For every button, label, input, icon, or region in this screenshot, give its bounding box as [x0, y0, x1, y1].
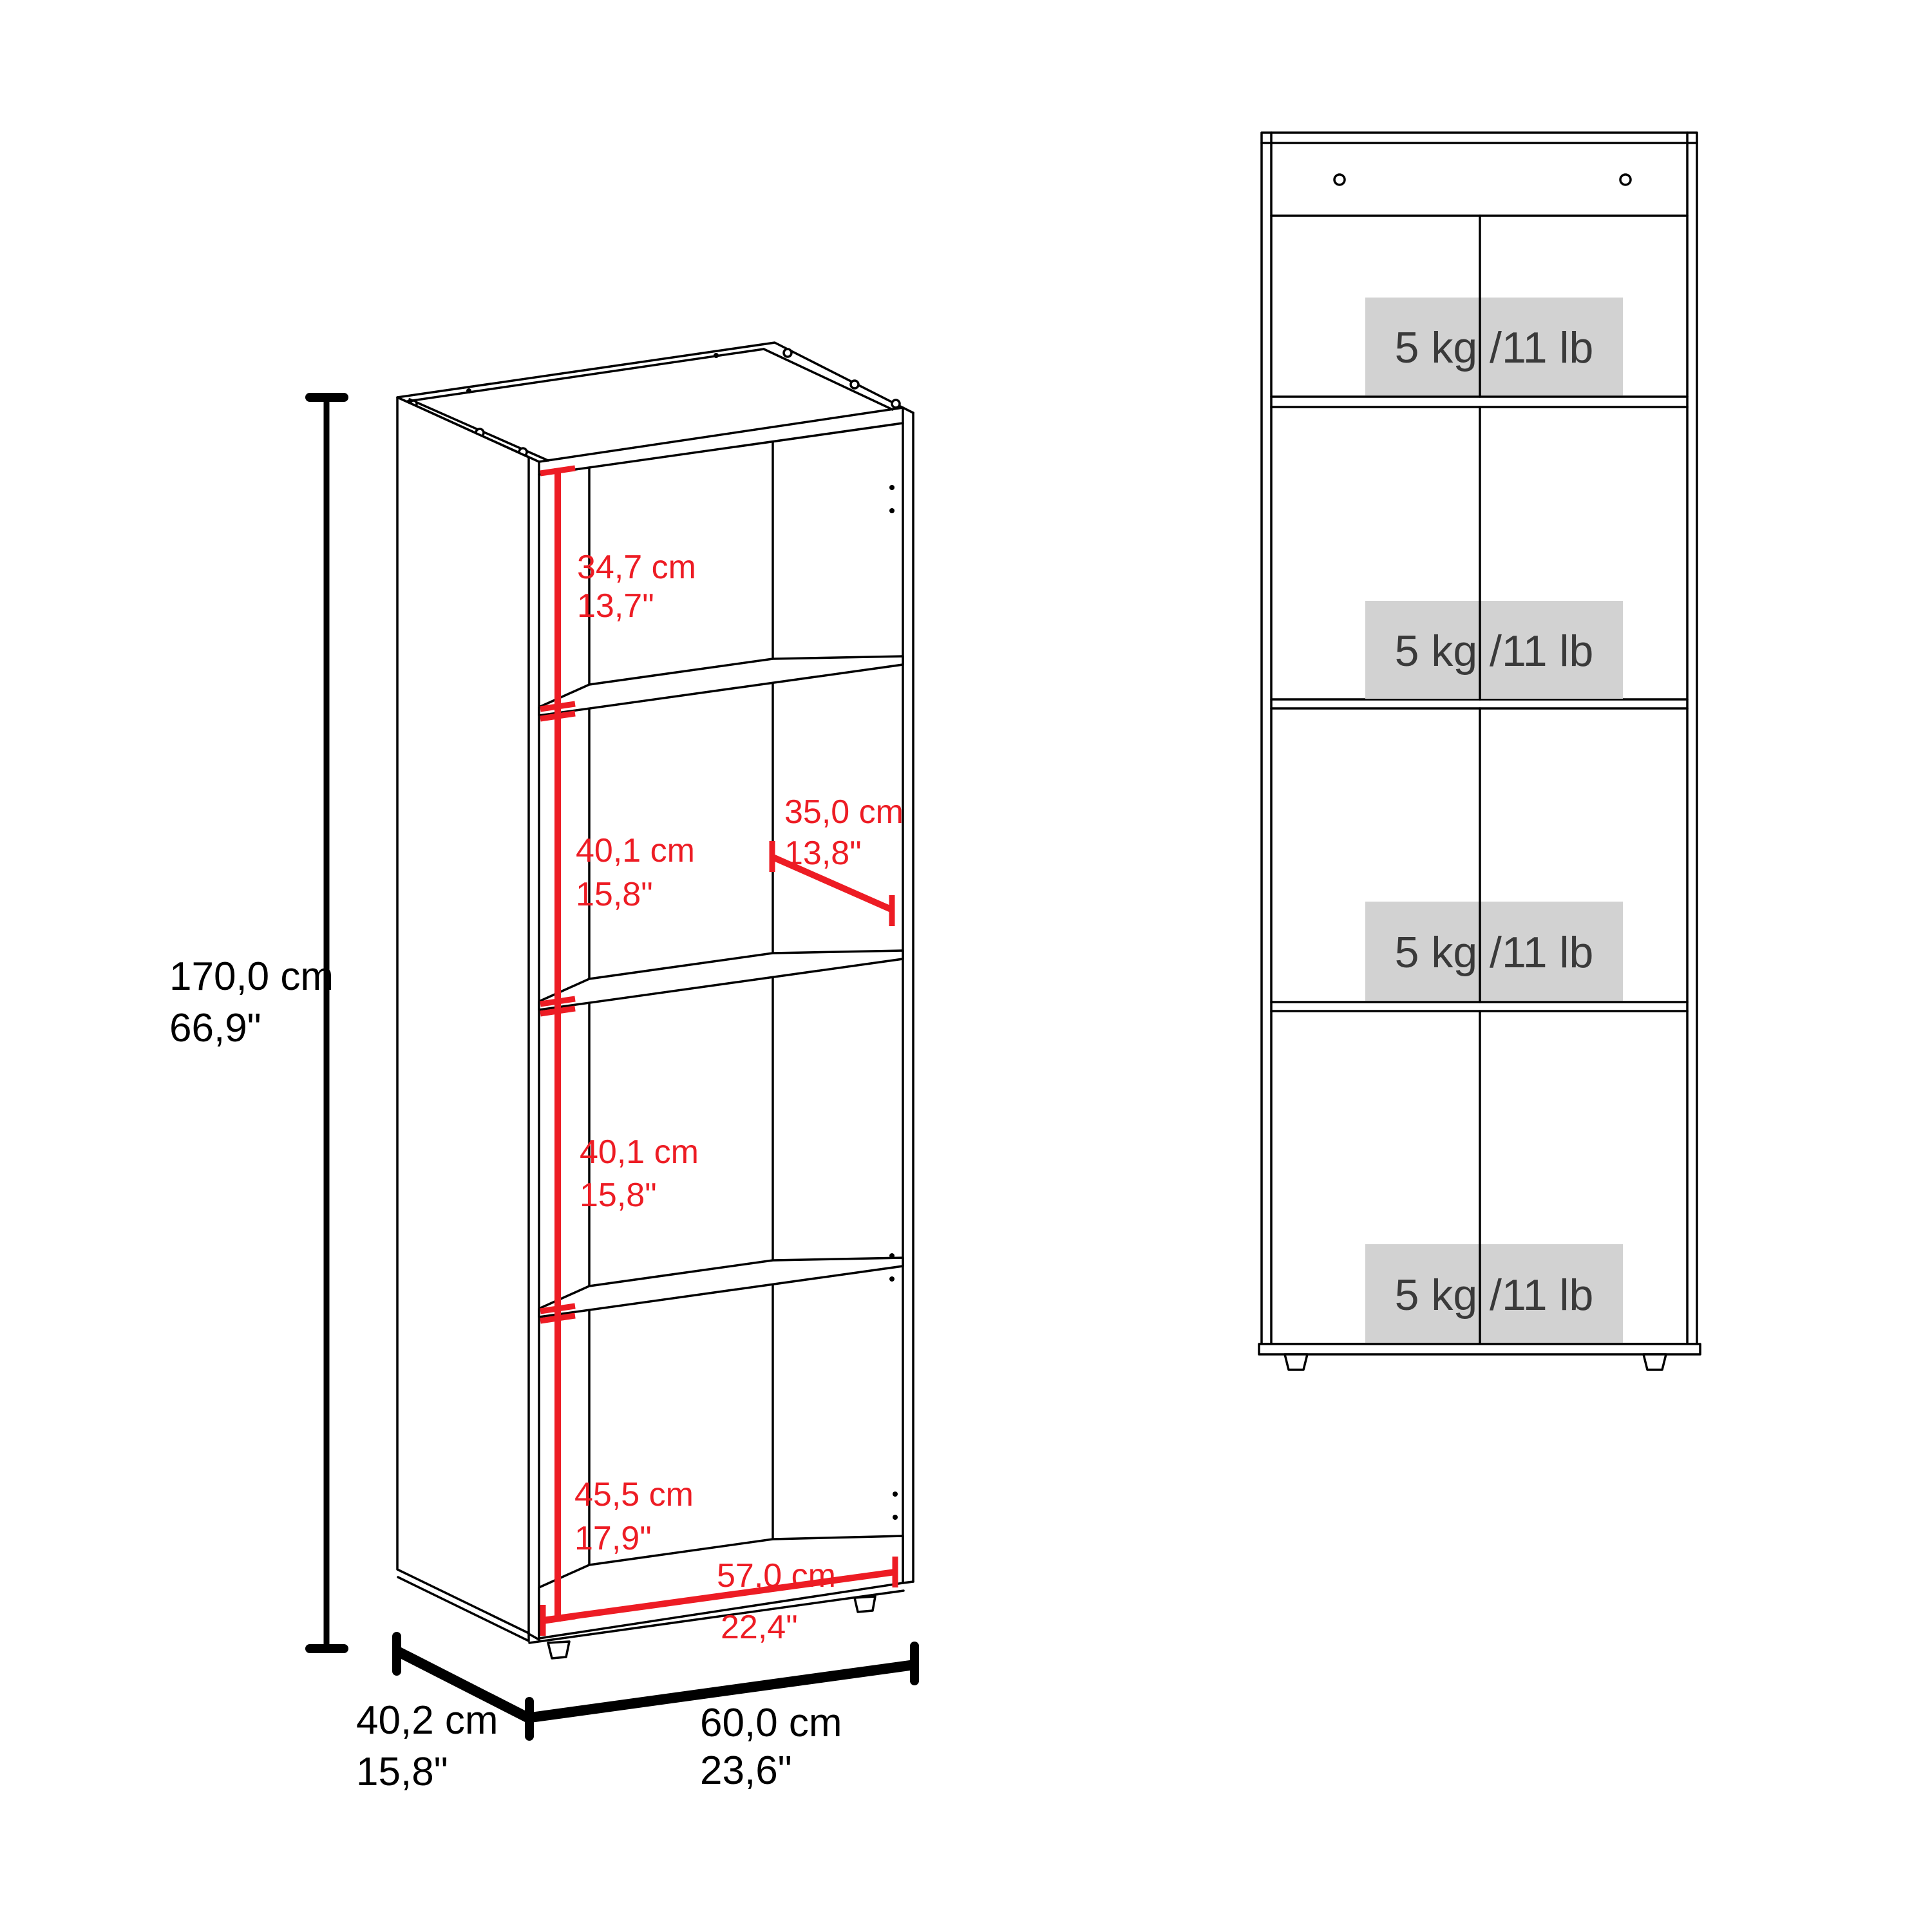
wall-mount-hole-icon: [1620, 175, 1631, 185]
shelf-board-1: [539, 656, 903, 715]
cam-dot-icon: [466, 388, 471, 393]
shelf-pin-hole-icon: [893, 1492, 898, 1497]
shelf-pin-hole-icon: [889, 1253, 895, 1258]
foot-left: [1285, 1354, 1307, 1370]
cam-dot-icon: [714, 353, 719, 358]
diagram-canvas: 170,0 cm 66,9" 40,2 cm 15,8" 60,0 cm 23,…: [0, 0, 1932, 1932]
foot-right: [855, 1596, 875, 1612]
shelf-2-load-label: 5 kg /11 lb: [1395, 627, 1594, 676]
compartment-1-height-inch-label: 13,7": [577, 587, 654, 625]
shelf-board-2: [539, 951, 903, 1010]
shelf-1-load-label: 5 kg /11 lb: [1395, 323, 1594, 372]
overall-height-inch-label: 66,9": [169, 1006, 261, 1050]
overall-height-cm-label: 170,0 cm: [169, 954, 334, 999]
wall-mount-hole-icon: [1334, 175, 1345, 185]
shelf-pin-hole-icon: [889, 508, 895, 513]
compartment-4-height-cm-label: 45,5 cm: [574, 1476, 694, 1513]
screw-hole-icon: [892, 400, 900, 408]
front-right-top-edge: [903, 408, 913, 413]
screw-hole-icon: [784, 349, 791, 357]
compartment-1-height-cm-label: 34,7 cm: [577, 549, 696, 586]
shelf-board-3: [539, 1258, 903, 1317]
dim-tick: [540, 468, 575, 473]
shelf-depth-inch-label: 13,8": [784, 835, 862, 872]
right-side-bottom-edge: [903, 1582, 913, 1583]
perspective-view: 170,0 cm 66,9" 40,2 cm 15,8" 60,0 cm 23,…: [169, 343, 914, 1794]
front-bottom-corner: [529, 1634, 539, 1640]
interior-width-inch-label: 22,4": [721, 1609, 798, 1646]
shelf-depth-cm-label: 35,0 cm: [784, 793, 904, 831]
overall-depth-cm-label: 40,2 cm: [356, 1698, 498, 1743]
compartment-3-height-inch-label: 15,8": [580, 1177, 657, 1214]
compartment-3-height-cm-label: 40,1 cm: [580, 1133, 699, 1171]
shelf-pin-hole-icon: [893, 1515, 898, 1520]
compartment-2-height-cm-label: 40,1 cm: [576, 832, 695, 869]
foot-right: [1643, 1354, 1666, 1370]
front-view: 5 kg /11 lb 5 kg /11 lb 5 kg /11 lb 5 kg…: [1259, 133, 1700, 1370]
interior-width-cm-label: 57,0 cm: [717, 1557, 836, 1595]
cabinet-left-side-panel: [397, 397, 529, 1633]
shelf-3-load-label: 5 kg /11 lb: [1395, 928, 1594, 977]
shelf-pin-hole-icon: [889, 485, 895, 490]
overall-depth-inch-label: 15,8": [356, 1750, 448, 1794]
compartment-2-height-inch-label: 15,8": [576, 876, 653, 913]
base-board: [1259, 1344, 1700, 1354]
shelf-pin-hole-icon: [889, 1276, 895, 1282]
foot-left: [548, 1642, 569, 1658]
compartment-4-height-inch-label: 17,9": [574, 1520, 652, 1557]
interior-dimension-lines: [540, 468, 895, 1636]
shelf-4-load-label: 5 kg /11 lb: [1395, 1271, 1594, 1320]
overall-width-cm-label: 60,0 cm: [700, 1701, 842, 1745]
screw-hole-icon: [851, 381, 858, 388]
overall-width-inch-label: 23,6": [700, 1748, 792, 1793]
